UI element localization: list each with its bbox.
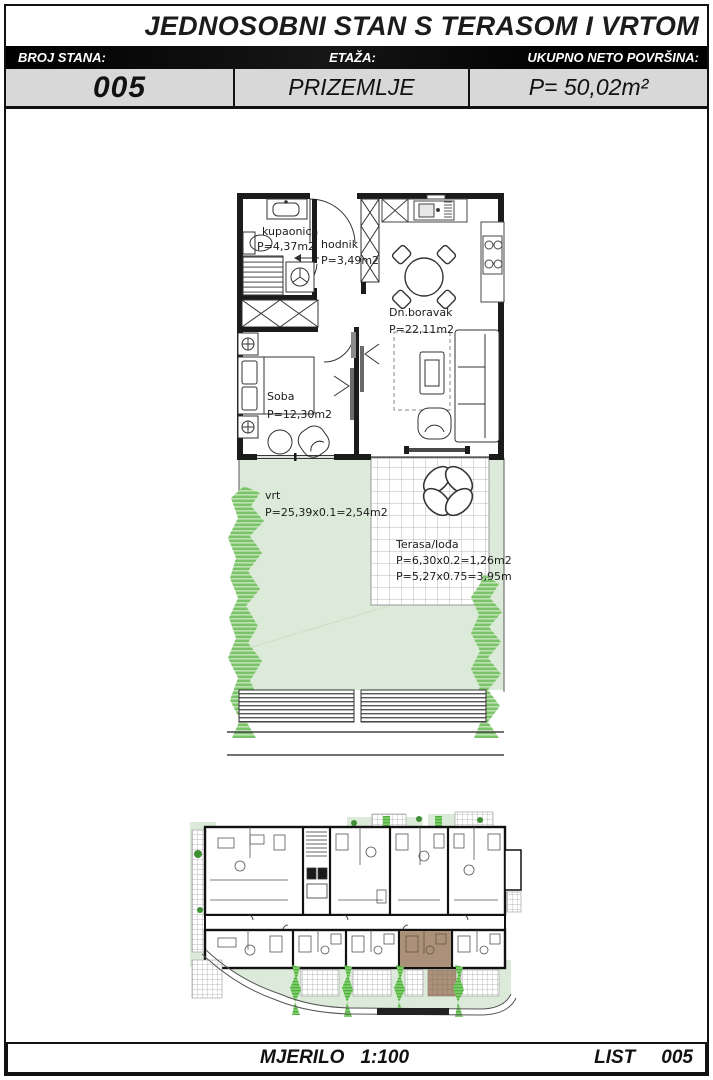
sheet-title-row: JEDNOSOBNI STAN S TERASOM I VRTOM [6,6,707,46]
site-building [205,827,521,968]
bathroom-area-label: P=4,37m2 [257,240,315,253]
corridor [205,915,505,930]
floor-label: ETAŽA: [235,50,470,65]
bed [238,357,314,414]
header-value-row: 005 PRIZEMLJE P= 50,02m² [6,69,707,109]
bedroom-label: Soba [267,390,294,403]
terrace-area1-label: P=6,30x0.2=1,26m2 [396,554,512,567]
hall-wardrobe [361,199,379,294]
shower [243,256,283,295]
stove [483,236,502,274]
building-overview-plan [188,810,532,1028]
apartment-floor-plan: kupaonica P=4,37m2 hodnik P=3,49m2 Dn.bo… [222,180,512,765]
sofa [455,330,499,442]
stool [268,430,292,454]
footer-bar: MJERILO 1:100 LIST 005 [6,1042,707,1074]
terrace-area2-label: P=5,27x0.75=3,95m2 [396,570,512,583]
scale-label: MJERILO [260,1047,344,1069]
living-furniture [394,330,499,442]
apartment-number-label: BROJ STANA: [6,50,235,65]
garden-label: vrt [265,489,281,502]
sheet-title: JEDNOSOBNI STAN S TERASOM I VRTOM [145,11,699,42]
garden-fence [227,690,504,755]
living-area-label: P=22,11m2 [389,323,454,336]
net-area-value: P= 50,02m² [470,69,707,106]
hall-label: hodnik [321,238,359,251]
net-area-label: UKUPNO NETO POVRŠINA: [470,50,707,65]
bedroom-area-label: P=12,30m2 [267,408,332,421]
bathroom-label: kupaonica [262,225,318,238]
sheet-number: 005 [661,1047,693,1069]
bathroom-sink [267,199,307,219]
living-label: Dn.boravak [389,306,453,319]
living-armchair [418,408,451,439]
sheet-label: LIST [594,1047,635,1069]
apartment-number-value: 005 [6,69,235,106]
highlighted-unit-005 [400,931,451,967]
floor-plan-sheet: JEDNOSOBNI STAN S TERASOM I VRTOM BROJ S… [0,0,713,1080]
coffee-table [420,352,444,394]
terrace-label: Terasa/lođa [395,538,459,551]
header-label-bar: BROJ STANA: ETAŽA: UKUPNO NETO POVRŠINA: [6,46,707,69]
sheet-group: LIST 005 [594,1047,693,1069]
kitchen-sink [414,201,454,220]
hall-area-label: P=3,49m2 [321,254,379,267]
highlighted-terrace [428,970,456,996]
garden-area-label: P=25,39x0.1=2,54m2 [265,506,388,519]
washing-machine [286,262,314,292]
dining-table [391,244,456,309]
scale-value: 1:100 [360,1047,409,1069]
scale-group: MJERILO 1:100 [260,1047,409,1069]
floor-value: PRIZEMLJE [235,69,470,106]
bedroom-closet [242,300,318,327]
